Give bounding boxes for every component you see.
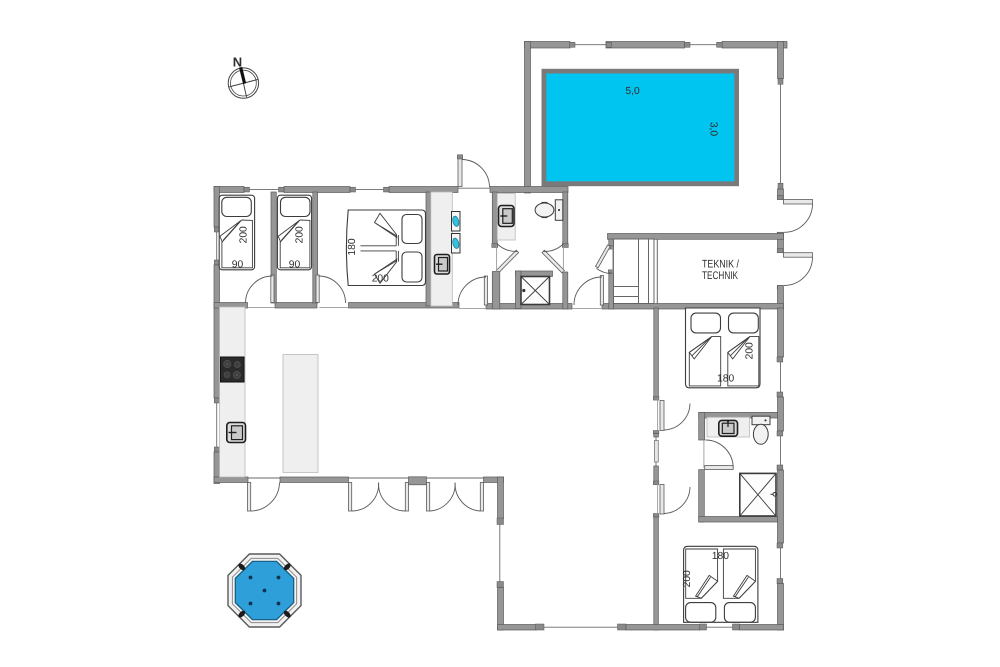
svg-text:5,0: 5,0: [625, 86, 640, 97]
svg-text:200: 200: [239, 226, 250, 243]
svg-text:180: 180: [717, 374, 734, 385]
svg-text:N: N: [233, 55, 242, 70]
svg-text:200: 200: [294, 226, 305, 243]
svg-text:90: 90: [232, 259, 244, 270]
svg-text:180: 180: [712, 551, 729, 562]
svg-text:3,0: 3,0: [708, 122, 719, 137]
svg-text:200: 200: [682, 570, 693, 587]
svg-text:TEKNIK /: TEKNIK /: [702, 258, 740, 270]
svg-text:TECHNIK: TECHNIK: [702, 270, 738, 282]
svg-text:180: 180: [347, 238, 358, 255]
svg-text:90: 90: [289, 259, 301, 270]
svg-text:200: 200: [745, 342, 756, 359]
svg-text:200: 200: [372, 273, 389, 284]
